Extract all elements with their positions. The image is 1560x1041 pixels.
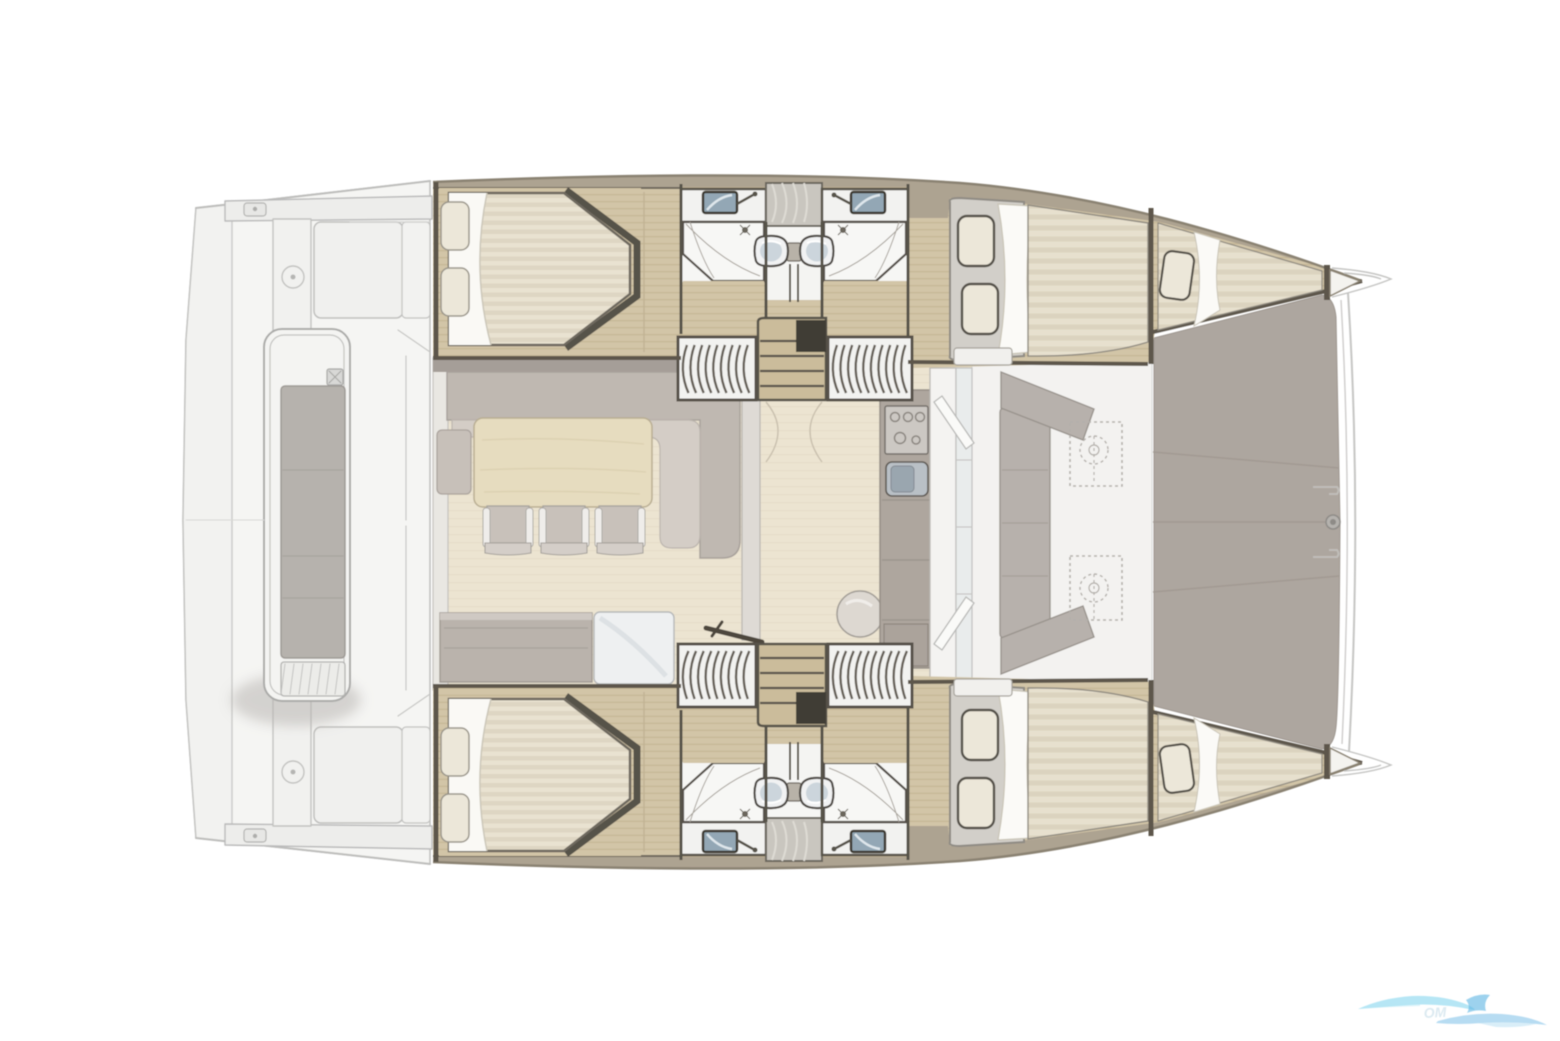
svg-text:OM: OM (1423, 1004, 1447, 1021)
